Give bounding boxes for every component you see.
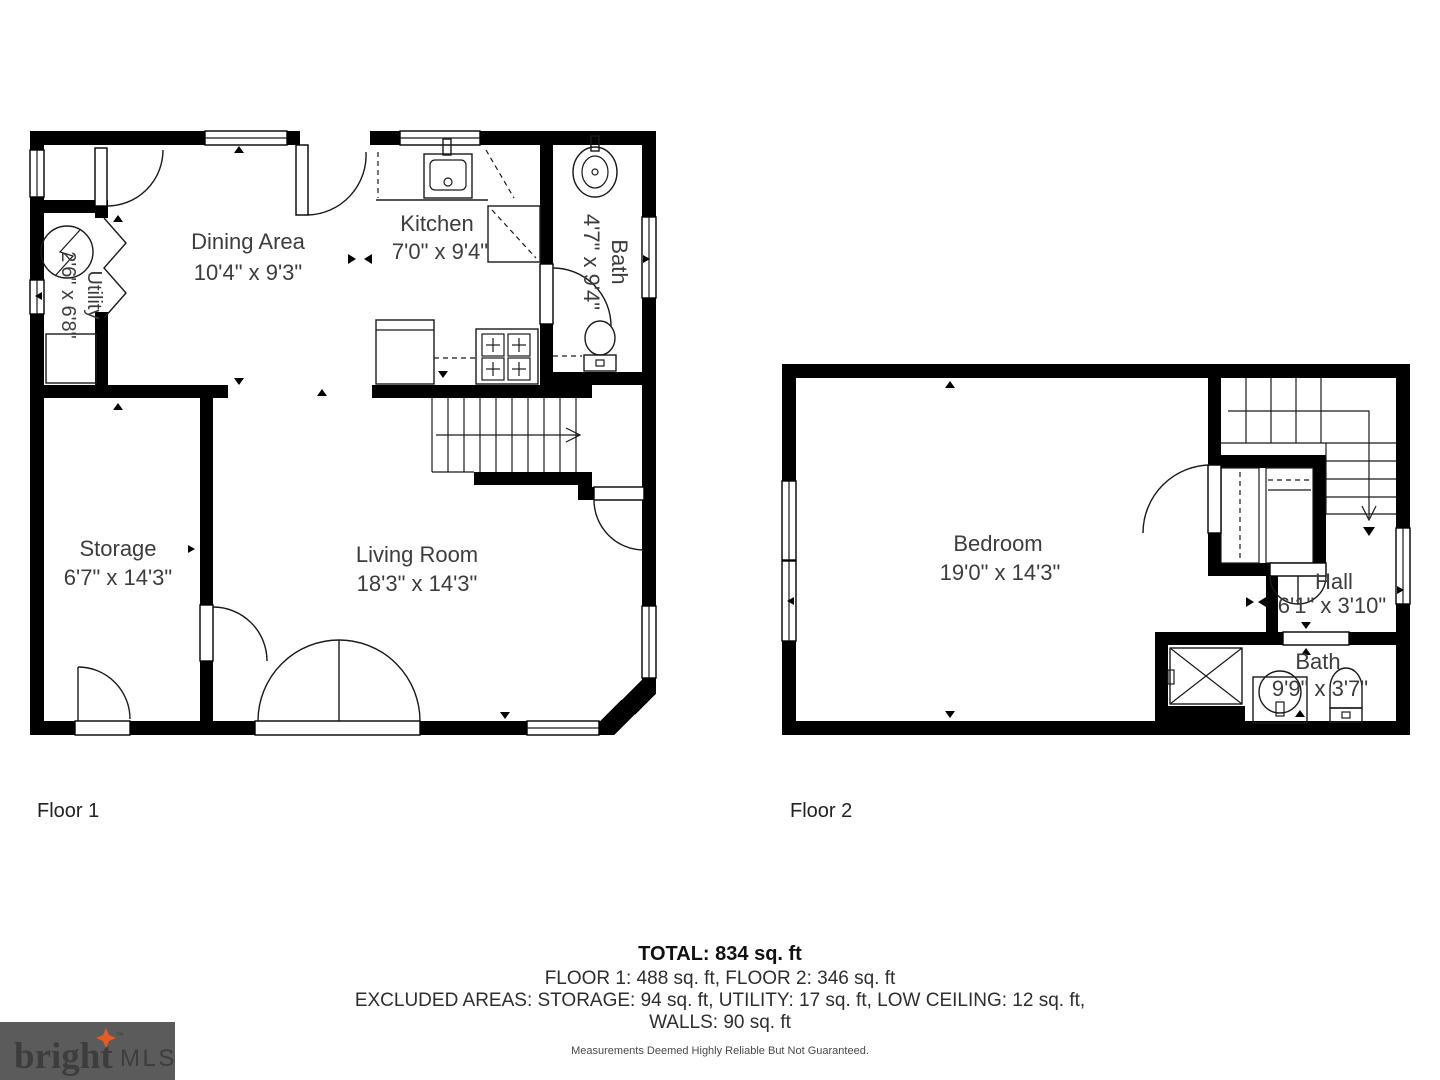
disclaimer-text: Measurements Deemed Highly Reliable But … (571, 1045, 869, 1057)
floor1-plan: Dining Area 10'4" x 9'3" Kitchen 7'0" x … (30, 131, 656, 822)
room-label-dining: Dining Area (191, 229, 306, 254)
room-dims-hall: 6'1" x 3'10" (1278, 593, 1386, 618)
summary-excluded: EXCLUDED AREAS: STORAGE: 94 sq. ft, UTIL… (355, 990, 1085, 1011)
logo-mls-text: MLS (120, 1045, 177, 1072)
room-dims-bath2: 9'9" x 3'7" (1272, 676, 1368, 701)
room-label-kitchen: Kitchen (400, 211, 473, 236)
room-label-living: Living Room (356, 542, 478, 567)
floor1-fixtures (41, 136, 617, 384)
floor2-caption: Floor 2 (790, 800, 852, 822)
room-label-storage: Storage (79, 536, 156, 561)
floorplan-drawing: Dining Area 10'4" x 9'3" Kitchen 7'0" x … (0, 0, 1440, 1080)
floor2-plan: Bedroom 19'0" x 14'3" Hall 6'1" x 3'10" … (782, 364, 1410, 822)
floor1-door-gaps (75, 131, 420, 735)
floor1-windows (30, 131, 656, 735)
area-summary: TOTAL: 834 sq. ft FLOOR 1: 488 sq. ft, F… (355, 943, 1085, 1057)
floor1-doors (78, 145, 644, 721)
bath-sink-icon (573, 147, 617, 197)
room-dims-utility: 2'6" x 6'8" (57, 251, 79, 338)
room-dims-storage: 6'7" x 14'3" (64, 565, 172, 590)
logo-brand-text: bright (14, 1036, 113, 1077)
utility-appliance (46, 334, 96, 383)
floor1-walls (30, 131, 656, 735)
room-dims-bedroom: 19'0" x 14'3" (940, 560, 1061, 585)
room-dims-living: 18'3" x 14'3" (357, 571, 478, 596)
floor1-caption: Floor 1 (37, 800, 99, 822)
brightmls-logo: bright ™ MLS (0, 1022, 177, 1080)
bifold-door (104, 218, 126, 318)
room-label-utility: Utility (83, 271, 105, 320)
toilet-icon (585, 321, 615, 355)
summary-floors: FLOOR 1: 488 sq. ft, FLOOR 2: 346 sq. ft (545, 968, 896, 989)
summary-total: TOTAL: 834 sq. ft (638, 943, 802, 965)
floor2-closet (1143, 465, 1313, 563)
floor1-dimension-markers (35, 146, 650, 719)
room-label-bedroom: Bedroom (953, 531, 1042, 556)
room-dims-dining: 10'4" x 9'3" (194, 260, 302, 285)
room-label-bath1: Bath (607, 239, 632, 284)
room-dims-kitchen: 7'0" x 9'4" (392, 239, 488, 264)
summary-walls: WALLS: 90 sq. ft (649, 1012, 792, 1033)
room-label-hall: Hall (1315, 569, 1353, 594)
logo-tm: ™ (116, 1031, 124, 1040)
floorplan-page: Dining Area 10'4" x 9'3" Kitchen 7'0" x … (0, 0, 1440, 1080)
corner-cabinet (488, 206, 540, 262)
floor1-stairs (432, 398, 580, 472)
room-label-bath2: Bath (1295, 649, 1340, 674)
room-dims-bath1: 4'7" x 9'4" (579, 214, 604, 310)
